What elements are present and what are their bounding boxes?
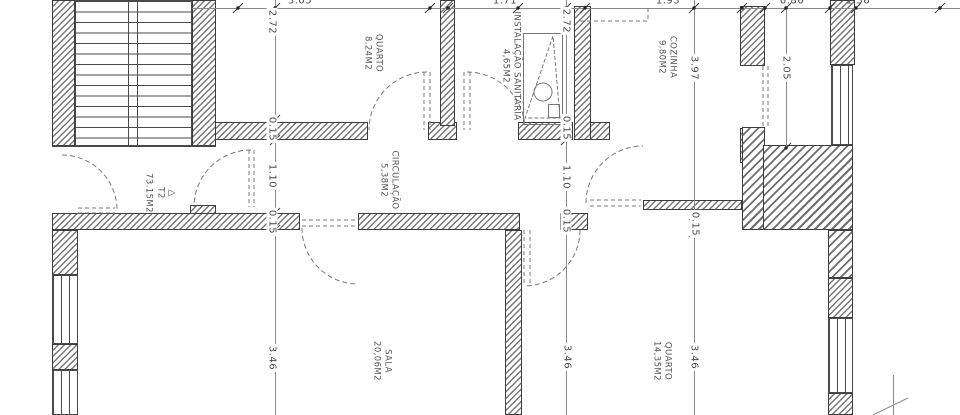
room-area: 20,06M2: [370, 341, 381, 381]
dim-label: 1.10: [267, 162, 278, 190]
room-label-cozinha: COZINHA 9.80M2: [655, 36, 678, 78]
room-name: COZINHA: [666, 36, 677, 78]
room-area: 4,65M2: [499, 11, 510, 120]
room-area: 8.24M2: [361, 34, 372, 72]
dim-label: 3.46: [689, 343, 700, 371]
dim-label: 3.46: [267, 344, 278, 372]
floor-plan-canvas: 2.72 0.15 1.10 0.15 3.46 2.72 0.15 1.10 …: [0, 0, 960, 415]
room-label-sala: SALA 20,06M2: [370, 341, 393, 381]
dim-label: 0.15: [267, 208, 278, 236]
dim-label: 0.15: [267, 115, 278, 143]
room-label-sanitaria: INSTALAÇÃO SANITÁRIA 4,65M2: [499, 11, 522, 120]
dim-label: 2.72: [267, 8, 278, 36]
unit-label-t2: △ T2 73.15M2: [142, 173, 177, 213]
room-name: INSTALAÇÃO SANITÁRIA: [510, 11, 521, 120]
room-name: SALA: [381, 341, 392, 381]
room-name: CIRCULAÇÃO: [388, 151, 399, 210]
dim-label-top: 1.93: [656, 0, 680, 7]
dim-label: 2.05: [781, 54, 792, 82]
dim-label: 0.15: [690, 210, 701, 238]
dim-label: 3.46: [562, 343, 573, 371]
dim-label: 0.15: [561, 114, 572, 142]
room-label-quarto-1: QUARTO 8.24M2: [361, 34, 384, 72]
dim-label-top: 1.71: [493, 0, 517, 7]
dim-label: 1.10: [561, 163, 572, 191]
unit-type: T2: [154, 173, 165, 213]
room-name: QUARTO: [661, 341, 672, 381]
dim-label-top: 0.86: [780, 0, 804, 7]
triangle-icon: △: [165, 173, 177, 213]
unit-area: 73.15M2: [142, 173, 153, 213]
dim-label: 2.72: [561, 7, 572, 35]
dim-label-top: 3.05: [288, 0, 312, 7]
dim-label: 3.97: [689, 54, 700, 82]
room-label-circulacao: CIRCULAÇÃO 5,38M2: [377, 151, 400, 210]
room-area: 9.80M2: [655, 36, 666, 78]
room-area: 5,38M2: [377, 151, 388, 210]
dim-label-top: 1.36: [846, 0, 870, 7]
room-name: QUARTO: [372, 34, 383, 72]
dim-label: 0.15: [561, 207, 572, 235]
room-label-quarto-2: QUARTO 14,35M2: [650, 341, 673, 381]
room-area: 14,35M2: [650, 341, 661, 381]
